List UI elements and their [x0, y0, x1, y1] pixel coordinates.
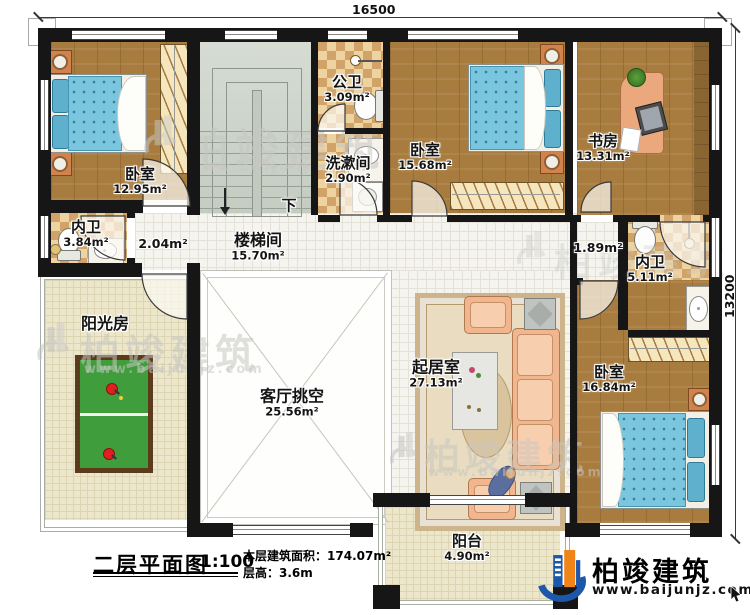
- floor-plan-canvas: 16500 13200: [0, 0, 750, 615]
- nightstand: [48, 50, 72, 74]
- washing-machine: [352, 182, 383, 212]
- room-label-living: 起居室 27.13m²: [409, 359, 462, 390]
- room-label-sunroom: 阳光房: [81, 315, 129, 333]
- room-label-hall-east: 1.89m²: [573, 241, 622, 255]
- room-label-ensuite-e: 内卫 5.11m²: [627, 254, 672, 284]
- wall: [525, 493, 570, 507]
- room-label-bedroom-nw: 卧室 12.95m²: [113, 166, 166, 196]
- window: [600, 525, 690, 535]
- sofa: [512, 328, 560, 470]
- pillow: [544, 69, 561, 107]
- bed-sheet-fold: [602, 413, 624, 507]
- sofa-cushion: [517, 424, 553, 466]
- wall: [187, 263, 200, 537]
- bed-sheet-fold: [117, 76, 146, 151]
- wardrobe-n: [450, 182, 564, 210]
- wardrobe-rail: [630, 348, 707, 349]
- blanket: [470, 66, 528, 150]
- dimension-top-value: 16500: [352, 2, 396, 17]
- wall: [390, 215, 412, 222]
- ping-pong-ball: [119, 396, 123, 400]
- window: [40, 80, 49, 150]
- company-logo-url: www.baijunjz.com: [592, 582, 750, 598]
- floor-height-annotation: 层高：3.6m: [243, 564, 313, 581]
- room-label-public-bath: 公卫 3.09m²: [324, 74, 369, 104]
- wall: [38, 263, 135, 277]
- ping-pong-paddle: [103, 448, 115, 460]
- room-label-balcony: 阳台 4.90m²: [444, 533, 489, 563]
- wall: [345, 128, 383, 134]
- wall: [690, 523, 722, 537]
- room-label-ensuite-nw: 内卫 3.84m²: [63, 219, 108, 249]
- toilet-tank: [57, 250, 81, 261]
- bed-n: [468, 64, 564, 152]
- shower-hose: [688, 222, 690, 239]
- window: [408, 30, 518, 40]
- window: [225, 30, 277, 40]
- wall: [628, 330, 709, 337]
- window: [72, 30, 165, 40]
- title-underline: [93, 576, 238, 577]
- table-decor: [476, 373, 481, 378]
- sofa-cushion: [517, 334, 553, 376]
- wall: [200, 523, 233, 537]
- sofa-cushion: [470, 302, 506, 328]
- bed-se: [600, 411, 710, 509]
- wall: [187, 42, 200, 215]
- plant: [627, 68, 646, 87]
- wardrobe-rail: [174, 46, 175, 170]
- ping-pong-paddle: [106, 383, 118, 395]
- floor-area-annotation: 本层建筑面积：174.07m²: [243, 547, 391, 564]
- window: [233, 525, 350, 535]
- wall: [135, 263, 142, 277]
- nightstand: [48, 152, 72, 176]
- person-head: [505, 468, 516, 479]
- stair-down-label: 下: [281, 198, 296, 215]
- side-table: [524, 298, 556, 330]
- room-label-void: 客厅挑空 25.56m²: [260, 388, 324, 419]
- room-label-study: 书房 13.31m²: [576, 133, 629, 163]
- sofa-cushion: [517, 379, 553, 421]
- window: [711, 85, 720, 150]
- wall: [350, 523, 373, 537]
- wall: [565, 42, 573, 222]
- pillow: [52, 115, 69, 149]
- wall: [38, 200, 143, 213]
- wall: [383, 42, 390, 215]
- wall: [565, 523, 600, 537]
- wall: [447, 215, 565, 222]
- wall: [373, 493, 430, 507]
- wall: [703, 215, 709, 222]
- blanket: [68, 76, 122, 151]
- study-cabinet: [694, 42, 709, 215]
- blanket: [618, 413, 686, 507]
- room-label-bedroom-se: 卧室 16.84m²: [582, 364, 635, 394]
- bed-sheet-fold: [524, 66, 546, 150]
- pillow: [52, 79, 69, 113]
- bed-nw: [48, 74, 147, 153]
- nightstand: [540, 150, 564, 174]
- drawing-title: 二层平面图: [93, 549, 208, 579]
- window: [711, 425, 720, 485]
- stair-arrow-head: [220, 207, 230, 215]
- stair-direction-arrow: [224, 188, 226, 208]
- room-label-stairwell: 楼梯间 15.70m²: [231, 232, 284, 263]
- window: [711, 218, 720, 277]
- pillow: [687, 462, 705, 502]
- wall: [570, 222, 577, 523]
- wardrobe-rail: [452, 194, 560, 195]
- company-logo-icon: [533, 546, 587, 612]
- wall: [311, 42, 318, 215]
- table-decor: [467, 405, 471, 409]
- table-decor: [469, 367, 475, 373]
- title-underline: [93, 572, 238, 574]
- wall: [573, 215, 581, 222]
- floor-lamp: [50, 244, 61, 255]
- toilet: [634, 226, 656, 254]
- stair-center-rail: [252, 90, 262, 217]
- pillow: [687, 418, 705, 458]
- sink: [689, 296, 708, 322]
- shower-head: [684, 238, 695, 249]
- dimension-line-top: [38, 17, 722, 18]
- wall: [127, 213, 135, 218]
- towel-rail: [358, 60, 382, 62]
- balcony-sliding-door: [430, 495, 525, 505]
- room-label-hall-west: 2.04m²: [138, 237, 187, 251]
- wall: [127, 258, 135, 263]
- wall: [318, 215, 340, 222]
- armchair: [464, 296, 512, 334]
- wall: [577, 278, 583, 285]
- window: [40, 216, 49, 258]
- room-label-washroom: 洗漱间 2.90m²: [325, 155, 370, 185]
- balcony-column: [373, 585, 400, 609]
- mouse-cursor: [730, 586, 744, 604]
- nightstand: [688, 388, 711, 411]
- wall: [377, 215, 390, 222]
- closet-se: [628, 337, 711, 362]
- dimension-right-value: 13200: [722, 275, 737, 319]
- pillow: [544, 110, 561, 148]
- room-label-bedroom-n: 卧室 15.68m²: [398, 142, 451, 172]
- table-decor: [477, 408, 481, 412]
- window: [328, 30, 367, 40]
